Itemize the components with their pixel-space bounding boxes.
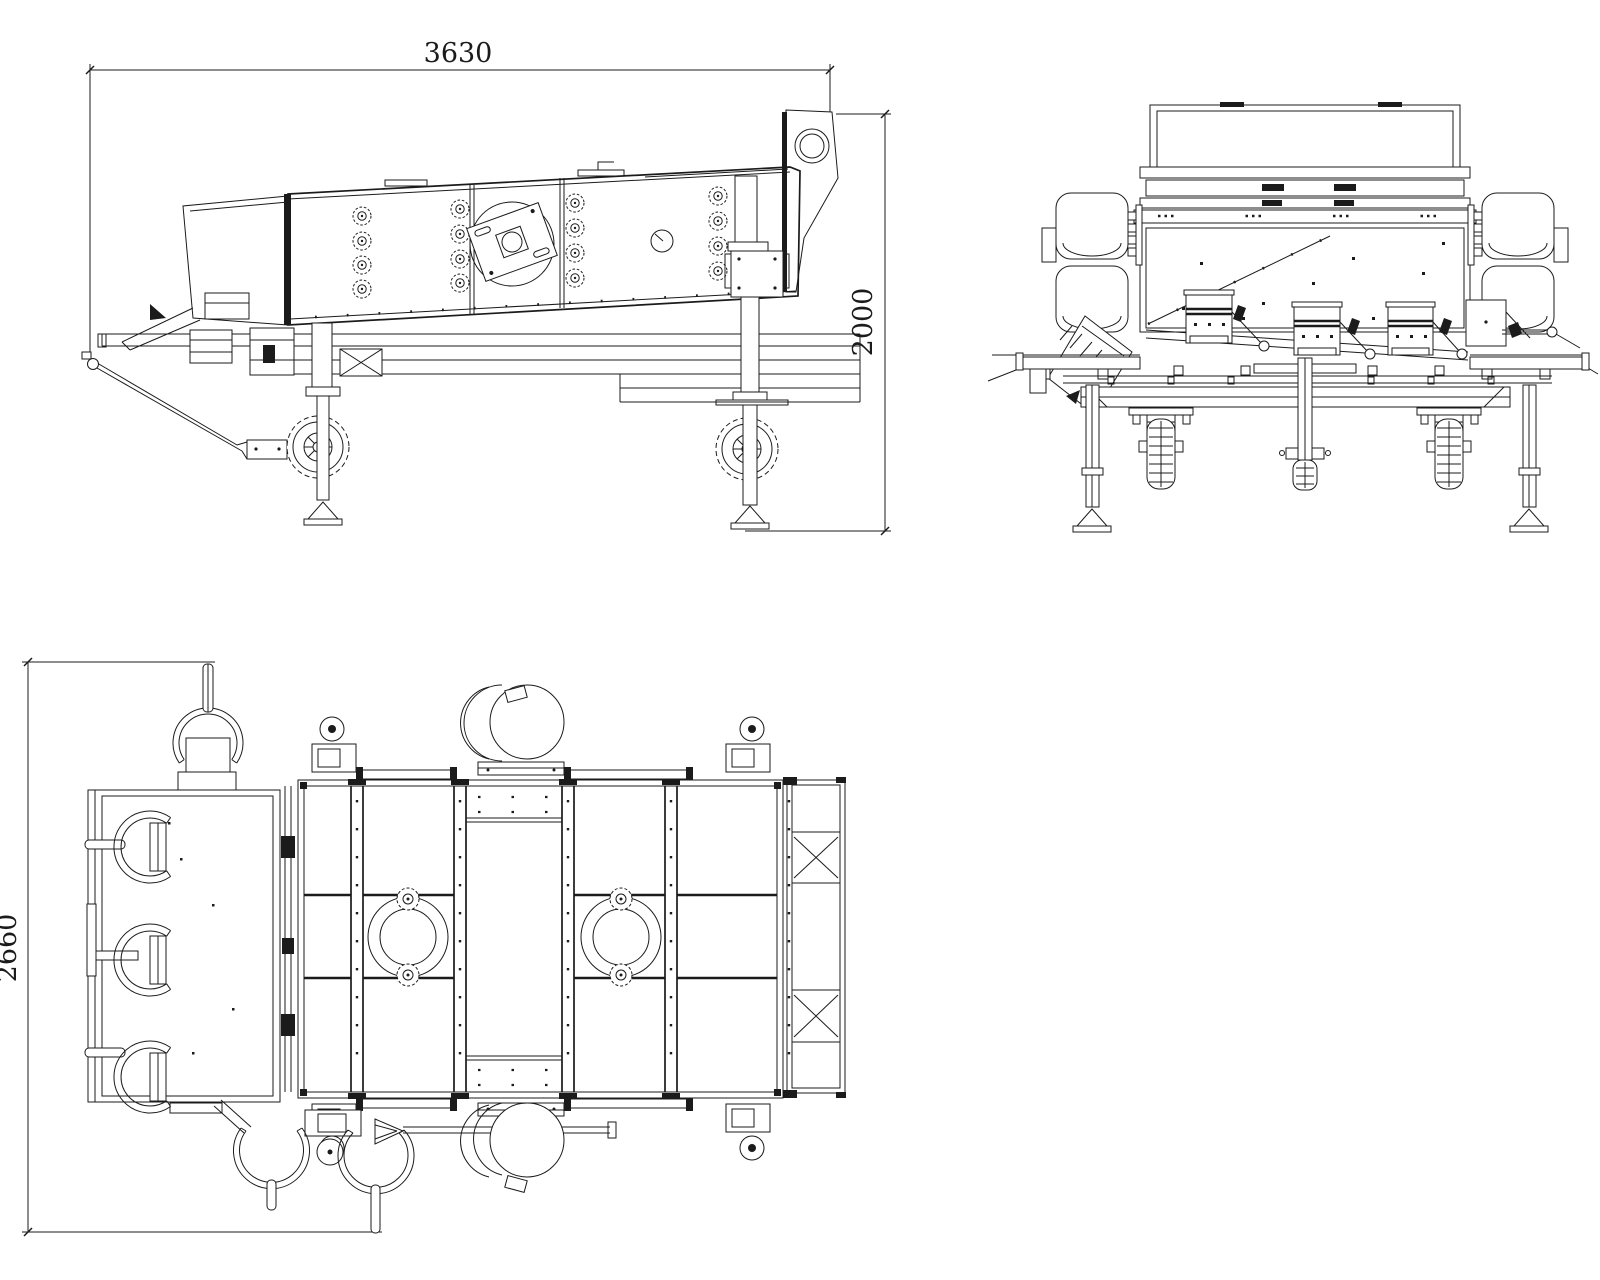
side-view: 3630 — [82, 38, 891, 535]
drawing-sheet: 3630 — [0, 0, 1600, 1280]
front-left-foot-icon — [1073, 509, 1111, 532]
vibrator-mount-plate — [467, 202, 673, 286]
front-view — [988, 102, 1598, 532]
screen-deck-top — [298, 779, 783, 1099]
cad-drawing-canvas: 3630 — [0, 0, 1600, 1280]
top-view: 2660 — [0, 658, 846, 1236]
front-left-tire-icon — [1147, 419, 1175, 489]
screen-body — [122, 162, 800, 350]
right-leg-wheel — [716, 176, 789, 529]
underbody-mechanism — [190, 328, 382, 376]
feed-hopper-top — [88, 786, 295, 1113]
access-panel-column — [783, 777, 846, 1098]
screen-frame-bands — [1134, 167, 1476, 223]
dim-label-overall-length: 3630 — [424, 38, 493, 69]
hopper — [1150, 102, 1460, 167]
front-right-foot-icon — [1510, 509, 1548, 532]
front-right-tire-icon — [1435, 419, 1463, 489]
dim-label-overall-width: 2660 — [0, 914, 23, 983]
motor-left-top-icon — [1056, 193, 1128, 259]
left-foot-icon — [304, 502, 342, 525]
dim-label-overall-height: 2000 — [848, 288, 879, 357]
center-jack-leg — [1254, 358, 1356, 490]
top-motor — [461, 685, 564, 775]
bottom-motor — [461, 1103, 564, 1192]
right-foot-icon — [731, 506, 769, 529]
discharge-end-plate — [782, 110, 838, 292]
top-left-arch — [173, 664, 243, 790]
motor-right-top-icon — [1482, 193, 1554, 259]
